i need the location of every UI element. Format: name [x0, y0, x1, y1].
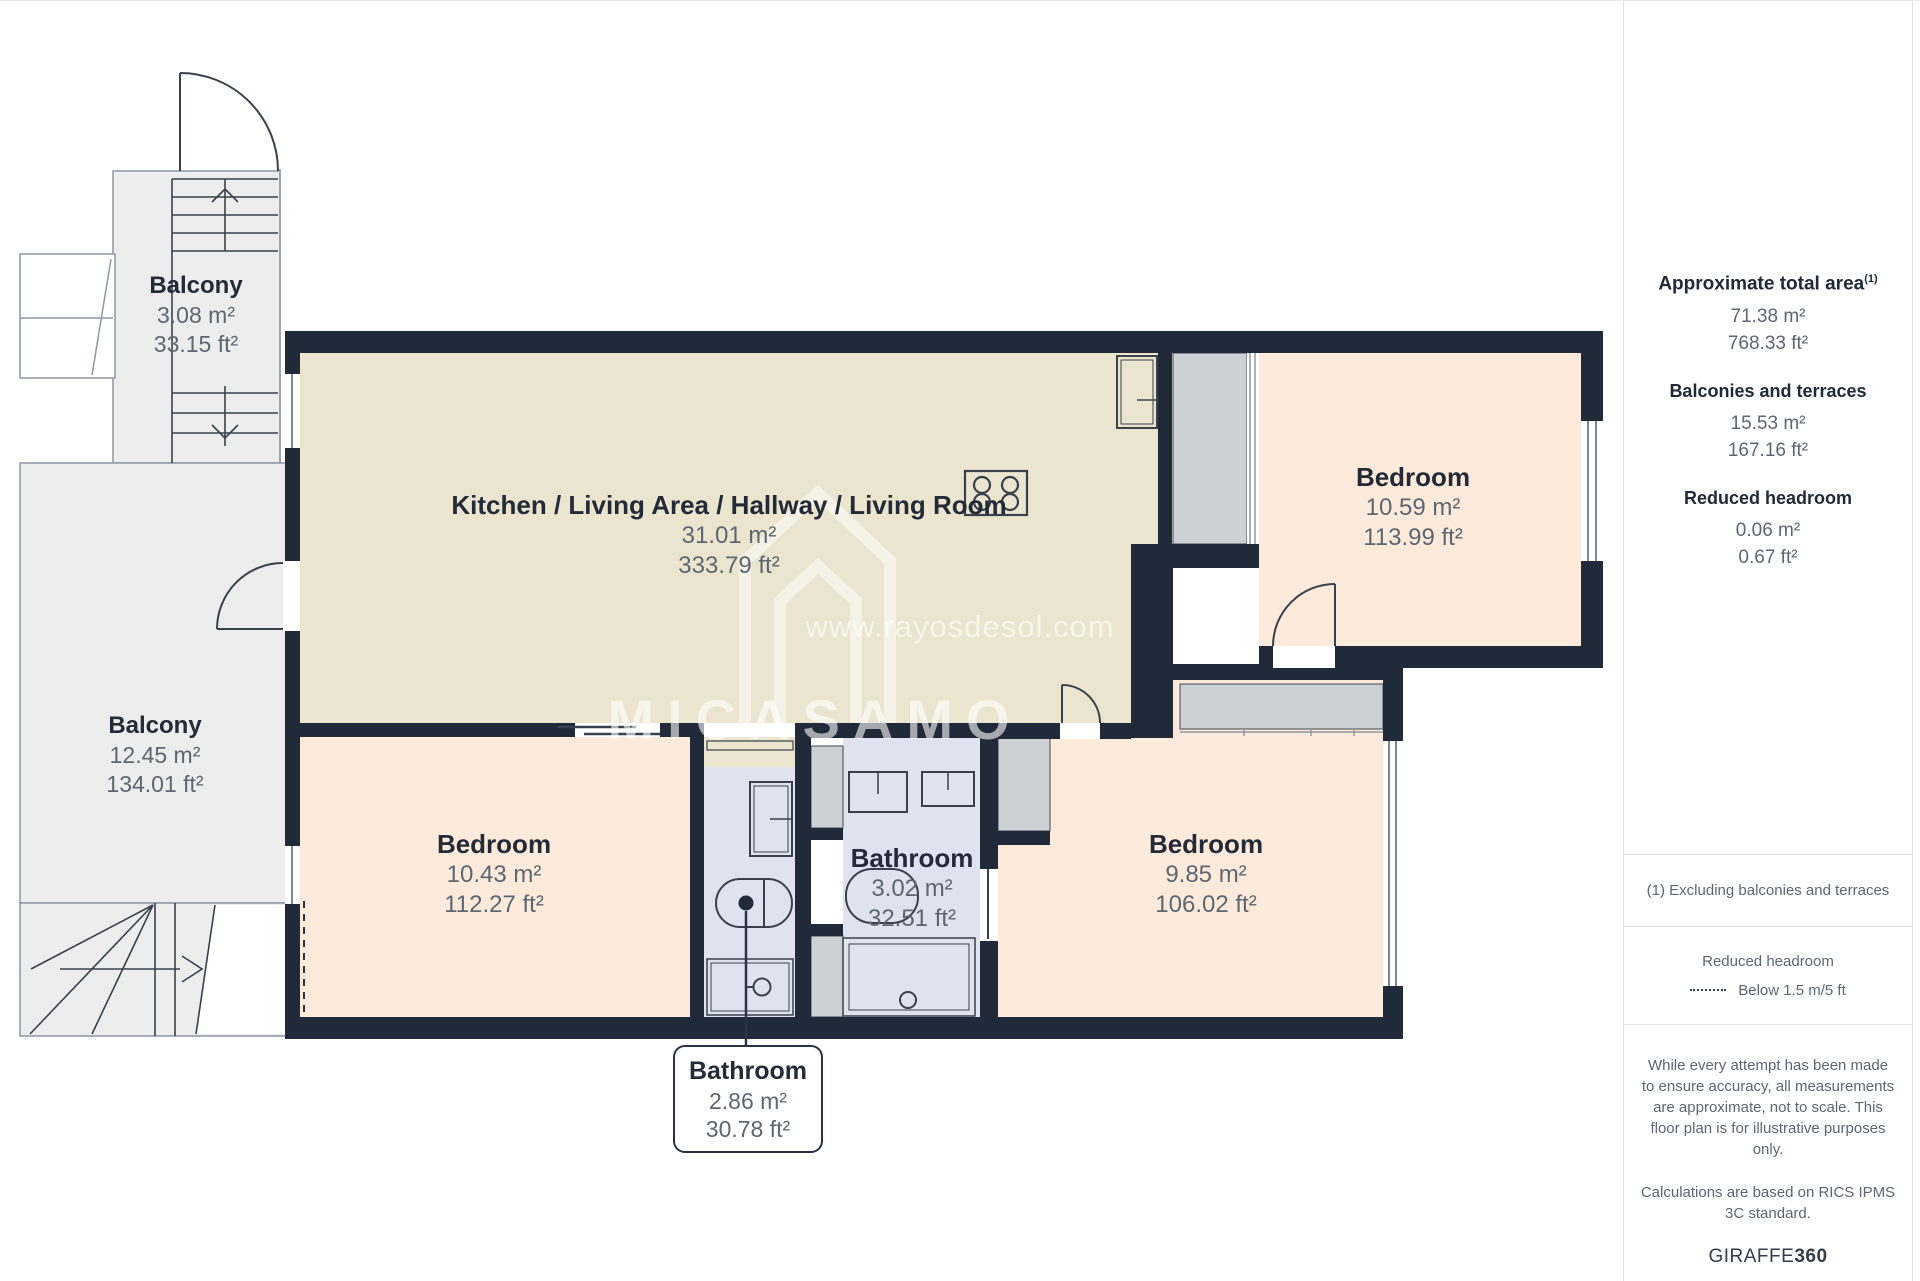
closet-a	[811, 746, 843, 828]
sidebar-stats: Approximate total area(1) 71.38 m² 768.3…	[1624, 1, 1912, 854]
balconies-ft2: 167.16 ft²	[1624, 437, 1912, 464]
sidebar-disclaimer: While every attempt has been made to ens…	[1624, 1024, 1912, 1281]
floorplan-page: www.rayosdesol.com MICASAMO Kitchen / Li…	[0, 0, 1920, 1281]
wardrobe-br	[1180, 684, 1383, 729]
giraffe360-logo: GIRAFFE360	[1640, 1246, 1896, 1267]
room-label-balcony-top: Balcony 3.08 m² 33.15 ft²	[149, 271, 242, 359]
balconies-m2: 15.53 m²	[1624, 410, 1912, 437]
legend-title: Reduced headroom	[1702, 953, 1834, 970]
room-label-kitchen: Kitchen / Living Area / Hallway / Living…	[451, 489, 1006, 581]
bathroom-callout: Bathroom 2.86 m² 30.78 ft²	[673, 1045, 823, 1153]
legend-row: Below 1.5 m/5 ft	[1690, 982, 1846, 999]
entrance-door-icon	[180, 73, 278, 171]
reduced-headroom-ft2: 0.67 ft²	[1624, 544, 1912, 571]
room-label-bedroom-bl: Bedroom 10.43 m² 112.27 ft²	[437, 828, 551, 920]
total-area-label: Approximate total area(1)	[1624, 273, 1912, 295]
total-area-ft2: 768.33 ft²	[1624, 330, 1912, 357]
room-label-bedroom-br: Bedroom 9.85 m² 106.02 ft²	[1149, 828, 1263, 920]
dotted-line-icon	[1690, 989, 1726, 991]
closet-b	[811, 936, 843, 1017]
reduced-headroom-m2: 0.06 m²	[1624, 517, 1912, 544]
watermark-url: www.rayosdesol.com	[805, 609, 1114, 645]
reduced-headroom-label: Reduced headroom	[1624, 488, 1912, 509]
disclaimer-paragraph-2: Calculations are based on RICS IPMS 3C s…	[1640, 1182, 1896, 1224]
wardrobe-tr	[1173, 353, 1247, 544]
sidebar: Approximate total area(1) 71.38 m² 768.3…	[1623, 1, 1913, 1281]
footnote-marker: (1)	[1864, 273, 1877, 285]
room-label-bedroom-tr: Bedroom 10.59 m² 113.99 ft²	[1356, 461, 1470, 553]
disclaimer-paragraph-1: While every attempt has been made to ens…	[1640, 1055, 1896, 1160]
room-label-balcony-left: Balcony 12.45 m² 134.01 ft²	[106, 711, 203, 799]
watermark-brand: MICASAMO	[607, 687, 1022, 752]
total-area-m2: 71.38 m²	[1624, 303, 1912, 330]
footnote-text: (1) Excluding balconies and terraces	[1647, 882, 1890, 899]
legend-item-text: Below 1.5 m/5 ft	[1738, 982, 1846, 999]
room-label-bathroom-main: Bathroom 3.02 m² 32.51 ft²	[851, 842, 974, 934]
sidebar-legend: Reduced headroom Below 1.5 m/5 ft	[1624, 926, 1912, 1024]
balconies-label: Balconies and terraces	[1624, 381, 1912, 402]
sidebar-footnote: (1) Excluding balconies and terraces	[1624, 854, 1912, 926]
